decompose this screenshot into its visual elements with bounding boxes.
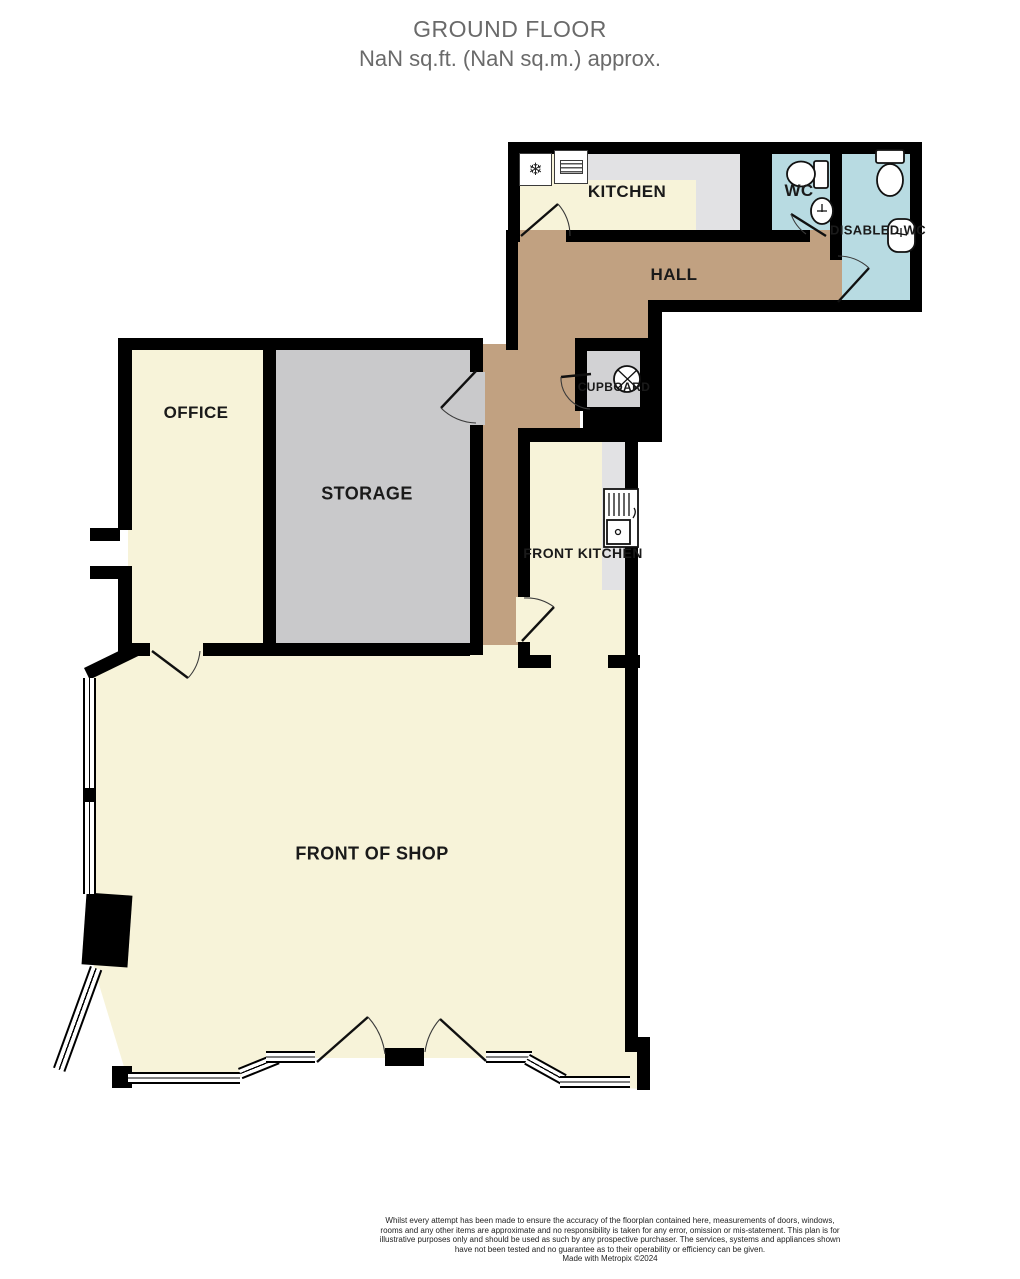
disabled-wc-door — [838, 268, 869, 302]
disabled-wc-toilet-icon — [877, 164, 903, 196]
credit-text: Made with Metropix ©2024 — [375, 1254, 845, 1264]
office-door — [152, 651, 188, 678]
doors-fixtures-layer — [0, 0, 1020, 1279]
front-kitchen-label: FRONT KITCHEN — [523, 545, 643, 561]
wc-toilet-cistern-icon — [814, 161, 828, 188]
front-kitchen-sink-bowl — [607, 520, 630, 544]
cupboard-label: CUPBOARD — [578, 380, 651, 394]
entrance-door-right — [440, 1019, 486, 1061]
front-kitchen-door — [522, 607, 554, 641]
kitchen-label: KITCHEN — [588, 182, 666, 202]
disabled-wc-toilet-cistern-icon — [876, 150, 904, 163]
floorplan-canvas: GROUND FLOOR NaN sq.ft. (NaN sq.m.) appr… — [0, 0, 1020, 1279]
footer: Whilst every attempt has been made to en… — [375, 1216, 845, 1264]
storage-door-arc — [441, 408, 476, 423]
entrance-door-left-arc — [368, 1017, 385, 1054]
storage-label: STORAGE — [321, 484, 412, 505]
front-kitchen-door-arc — [524, 598, 554, 607]
front-of-shop-label: FRONT OF SHOP — [295, 844, 448, 865]
office-door-arc — [188, 651, 200, 678]
office-label: OFFICE — [164, 403, 229, 423]
hall-label: HALL — [651, 265, 698, 285]
disabled-wc-label: DISABLED WC — [830, 223, 926, 238]
entrance-door-right-arc — [425, 1019, 440, 1052]
wc-label: WC — [784, 181, 813, 201]
kitchen-door — [521, 204, 558, 236]
storage-door — [441, 371, 476, 408]
entrance-door-left — [317, 1017, 368, 1062]
disabled-wc-door-arc — [838, 256, 869, 268]
kitchen-door-arc — [558, 204, 570, 236]
cupboard-door — [561, 374, 591, 377]
disclaimer-text: Whilst every attempt has been made to en… — [375, 1216, 845, 1254]
wc-door-arc — [791, 214, 806, 234]
